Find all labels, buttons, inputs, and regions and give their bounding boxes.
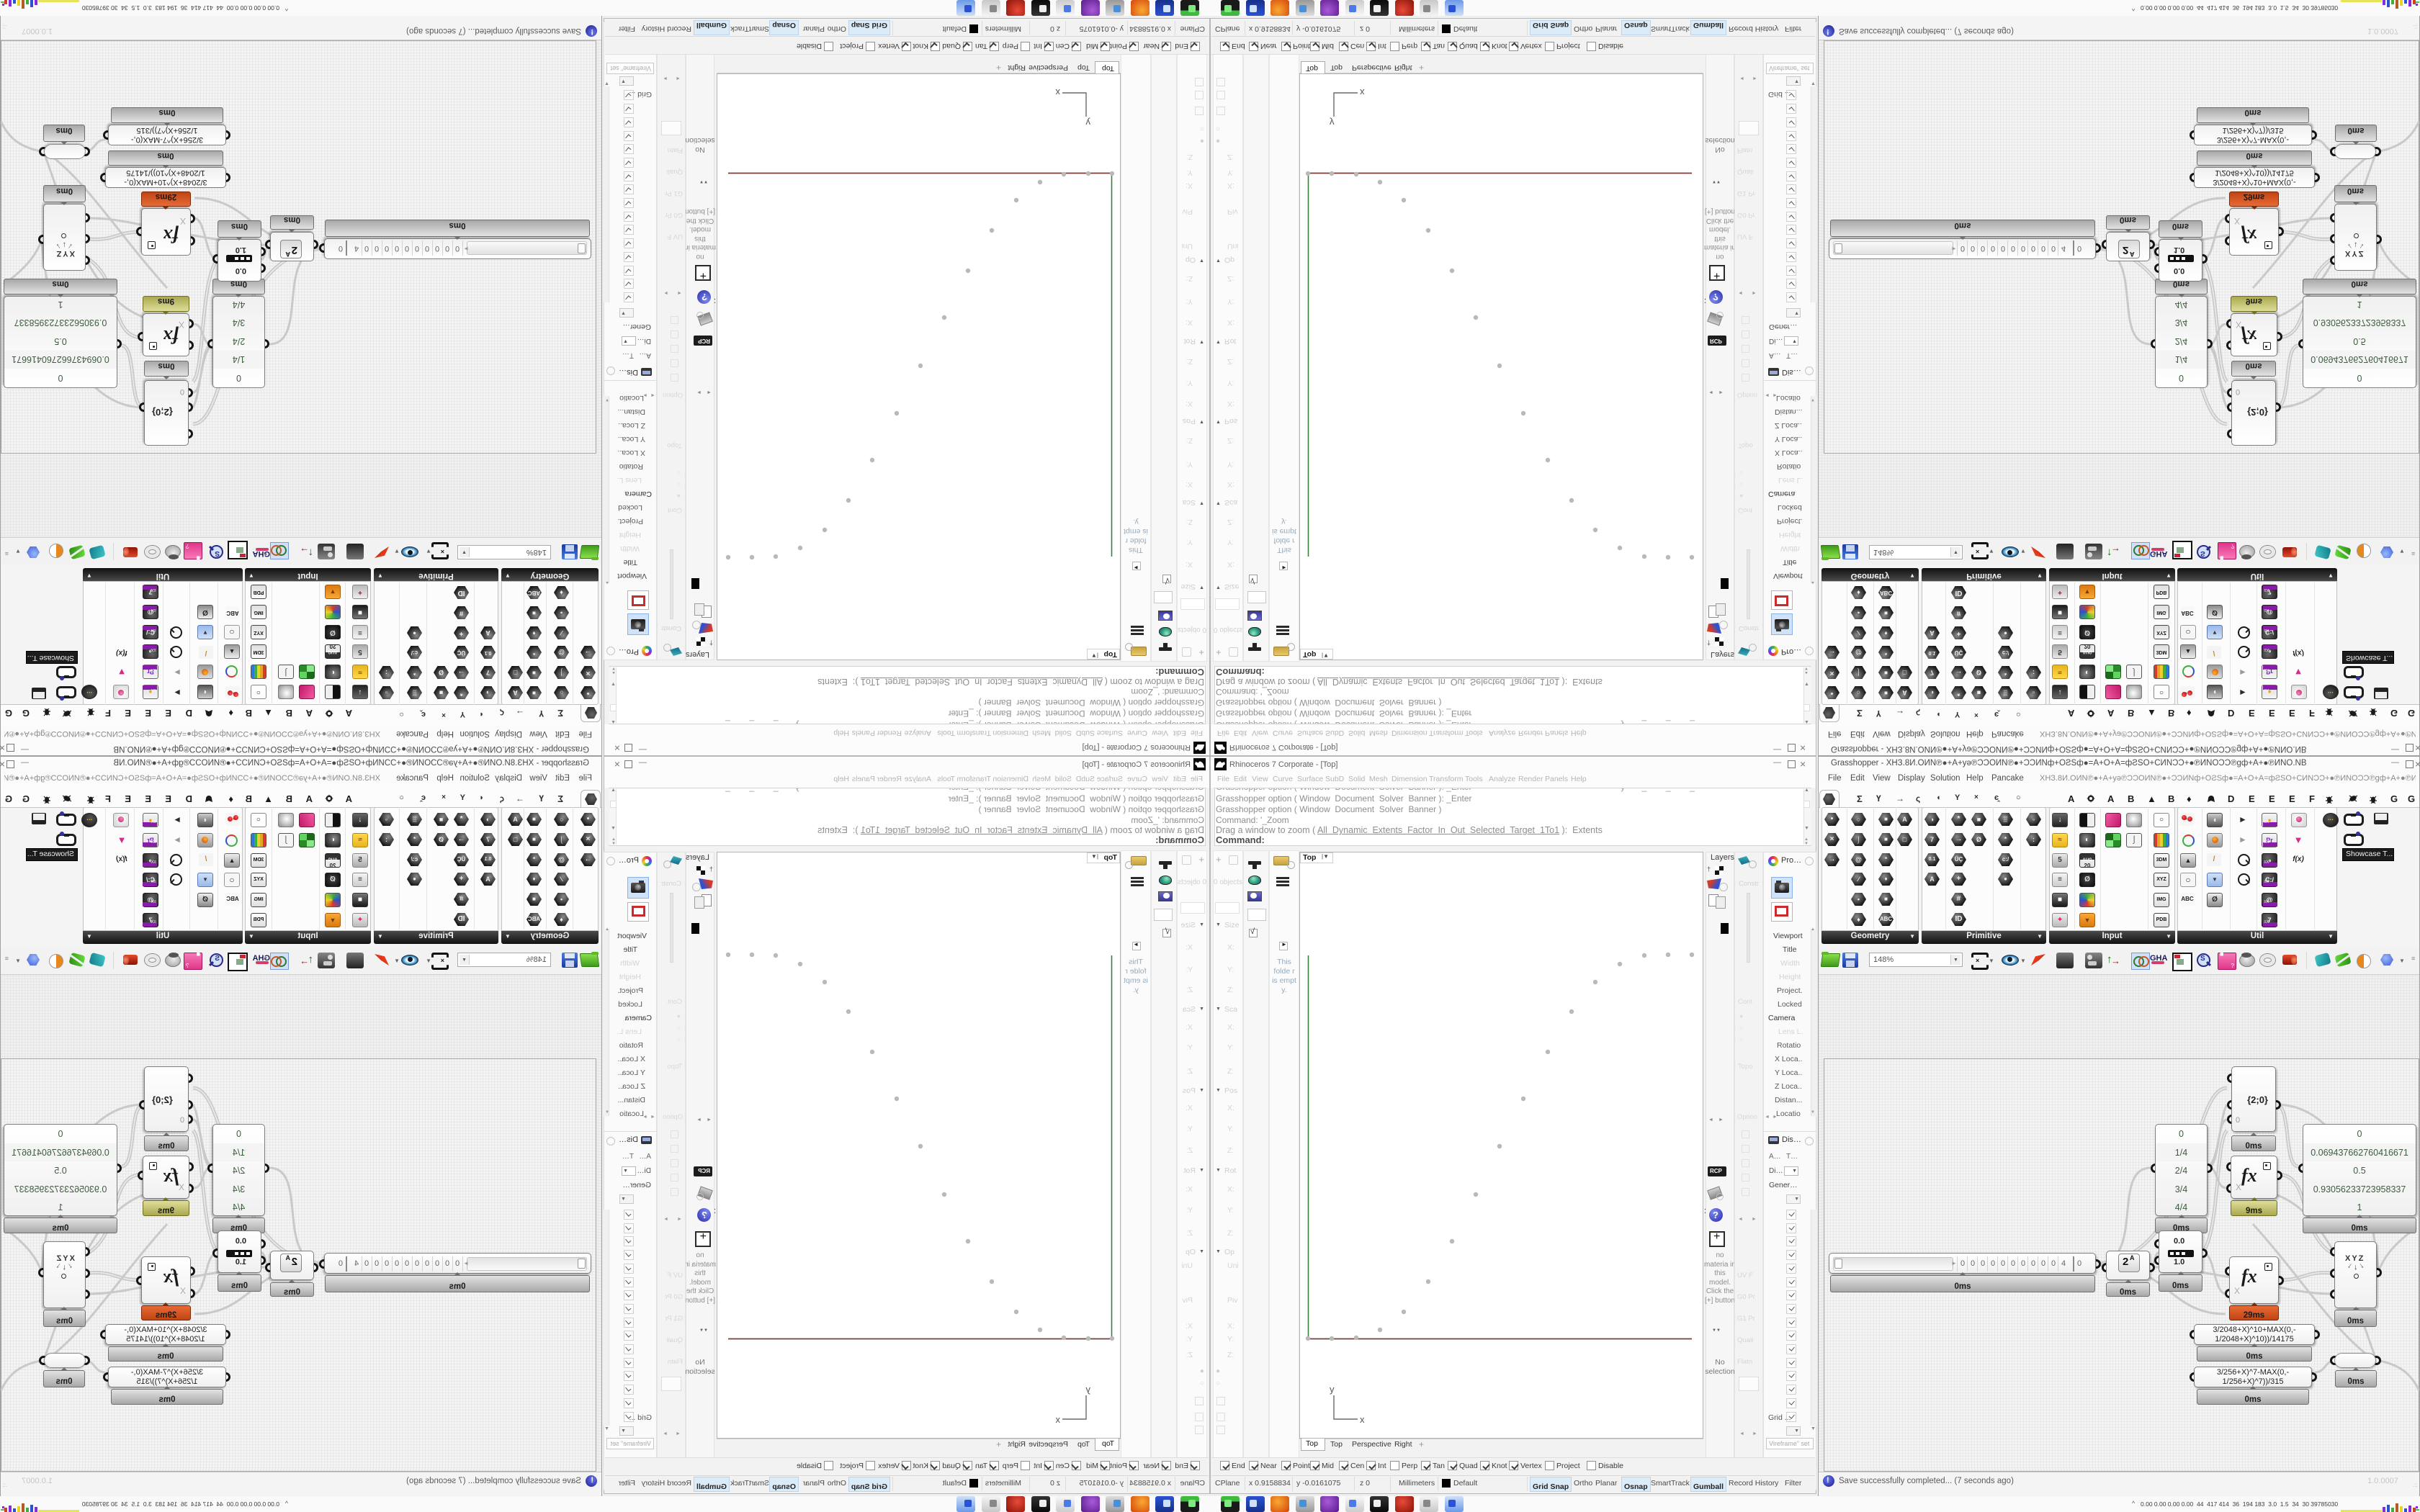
svg-text:y: y (1085, 117, 1090, 128)
svg-text:y: y (1330, 1384, 1335, 1395)
svg-text:x: x (1360, 1414, 1365, 1425)
svg-text:x: x (1055, 1414, 1060, 1425)
svg-text:x: x (1360, 87, 1365, 98)
svg-text:y: y (1330, 117, 1335, 128)
svg-text:x: x (1055, 87, 1060, 98)
svg-text:y: y (1085, 1384, 1090, 1395)
